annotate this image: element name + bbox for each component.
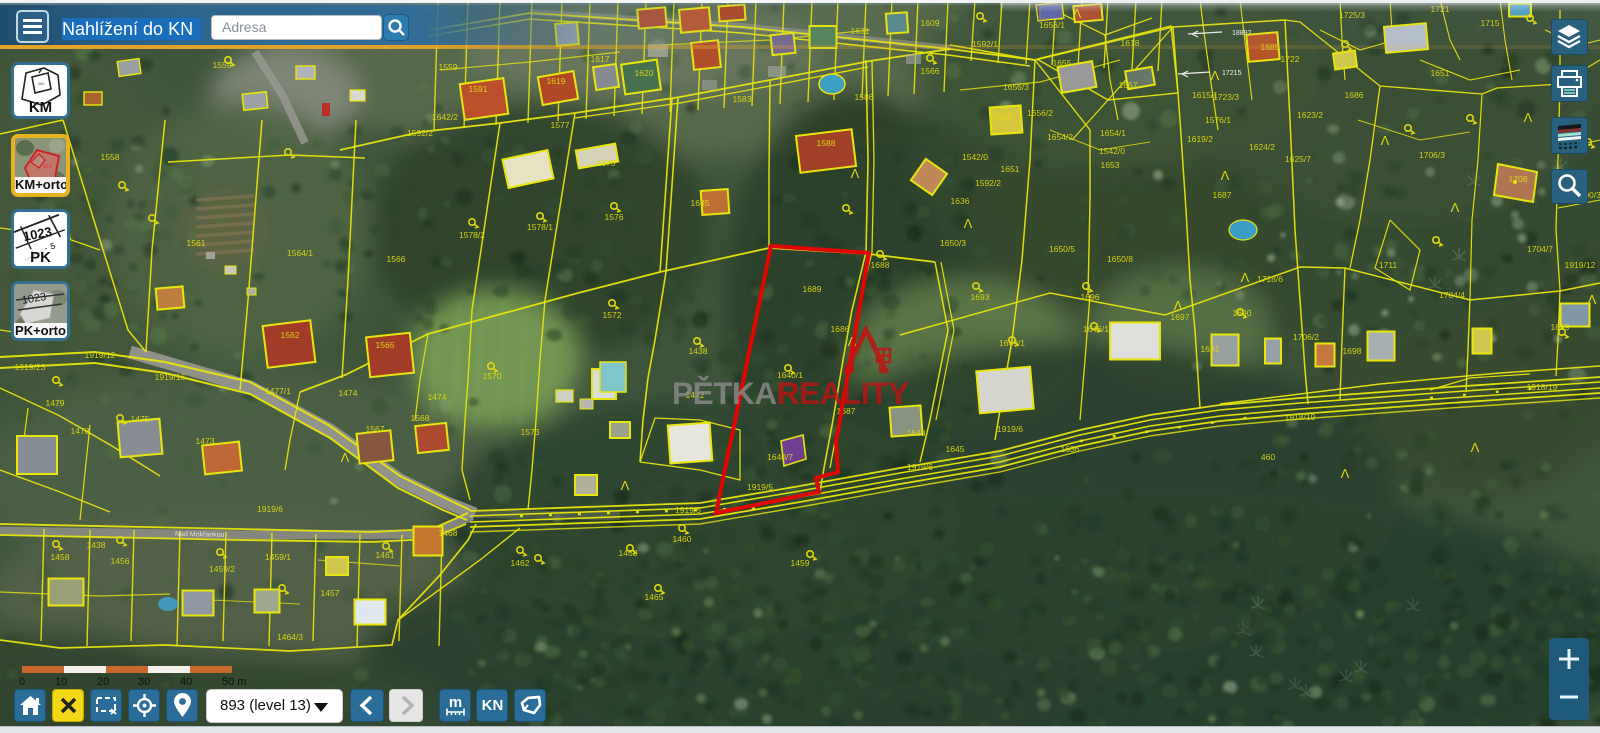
svg-text:1562: 1562 <box>281 330 300 340</box>
svg-text:Λ: Λ <box>1451 200 1460 215</box>
svg-text:1654/1: 1654/1 <box>1100 128 1126 138</box>
svg-text:1570: 1570 <box>483 371 502 381</box>
svg-text:1919/6: 1919/6 <box>997 424 1023 434</box>
svg-text:Λ: Λ <box>621 478 630 493</box>
svg-text:1704/7: 1704/7 <box>1527 244 1553 254</box>
svg-text:1653: 1653 <box>1101 160 1120 170</box>
svg-text:1691: 1691 <box>1201 344 1220 354</box>
svg-text:1479: 1479 <box>46 398 65 408</box>
svg-text:1458: 1458 <box>51 552 70 562</box>
svg-text:1645: 1645 <box>946 444 965 454</box>
svg-text:1468: 1468 <box>439 528 458 538</box>
svg-text:Λ: Λ <box>964 216 973 231</box>
svg-text:1620: 1620 <box>635 68 654 78</box>
svg-text:1919/5: 1919/5 <box>675 505 701 515</box>
svg-text:1459/2: 1459/2 <box>209 564 235 574</box>
svg-text:Λ: Λ <box>1341 466 1350 481</box>
svg-text:1558: 1558 <box>101 152 120 162</box>
svg-text:1583: 1583 <box>733 94 752 104</box>
svg-text:1559: 1559 <box>439 62 458 72</box>
svg-text:1689: 1689 <box>803 284 822 294</box>
svg-text:1918/19: 1918/19 <box>1285 412 1316 422</box>
svg-text:1588: 1588 <box>817 138 836 148</box>
svg-text:1619: 1619 <box>547 76 566 86</box>
svg-text:1564/1: 1564/1 <box>287 248 313 258</box>
svg-text:1706/2: 1706/2 <box>1293 332 1319 342</box>
svg-text:1591: 1591 <box>469 84 488 94</box>
svg-text:1693: 1693 <box>971 292 990 302</box>
svg-text:1722: 1722 <box>1281 54 1300 64</box>
svg-text:Λ: Λ <box>1588 292 1597 307</box>
svg-text:Λ: Λ <box>1524 110 1533 125</box>
svg-text:1723/3: 1723/3 <box>1213 92 1239 102</box>
svg-text:1699: 1699 <box>1551 322 1570 332</box>
svg-text:1566: 1566 <box>387 254 406 264</box>
svg-text:1464/3: 1464/3 <box>277 632 303 642</box>
svg-text:1718/6: 1718/6 <box>1257 274 1283 284</box>
svg-text:1567: 1567 <box>366 424 385 434</box>
svg-text:1578/1: 1578/1 <box>527 222 553 232</box>
svg-text:1459: 1459 <box>791 558 810 568</box>
svg-text:460: 460 <box>1261 452 1275 462</box>
svg-text:1655: 1655 <box>1053 58 1072 68</box>
svg-text:1566: 1566 <box>921 66 940 76</box>
svg-text:1559: 1559 <box>213 60 232 70</box>
svg-text:Λ: Λ <box>1241 270 1250 285</box>
svg-text:1642/2: 1642/2 <box>432 112 458 122</box>
svg-text:1575: 1575 <box>597 158 616 168</box>
svg-text:1640/7: 1640/7 <box>767 452 793 462</box>
svg-text:1576: 1576 <box>605 212 624 222</box>
svg-text:1592/2: 1592/2 <box>407 128 433 138</box>
svg-text:1477/1: 1477/1 <box>265 386 291 396</box>
svg-text:Λ: Λ <box>1381 133 1390 148</box>
svg-text:Λ: Λ <box>1174 298 1183 313</box>
svg-text:1636: 1636 <box>1061 444 1080 454</box>
svg-text:PĚTKAREALITY: PĚTKAREALITY <box>672 375 909 411</box>
svg-text:1457: 1457 <box>321 588 340 598</box>
svg-text:1643: 1643 <box>907 428 926 438</box>
svg-text:1919/6: 1919/6 <box>257 504 283 514</box>
svg-text:1698: 1698 <box>1343 346 1362 356</box>
svg-text:Nad Mokřankou: Nad Mokřankou <box>175 531 225 539</box>
svg-text:1919/23: 1919/23 <box>15 362 46 372</box>
svg-text:1919/16: 1919/16 <box>155 372 186 382</box>
svg-text:1459/1: 1459/1 <box>265 552 291 562</box>
svg-text:1635: 1635 <box>691 198 710 208</box>
svg-text:1617: 1617 <box>591 54 610 64</box>
svg-text:1656/2: 1656/2 <box>1027 108 1053 118</box>
svg-text:1619/2: 1619/2 <box>1187 134 1213 144</box>
svg-text:1918/19: 1918/19 <box>1527 382 1558 392</box>
svg-text:Λ: Λ <box>1471 440 1480 455</box>
svg-text:1650/3: 1650/3 <box>940 238 966 248</box>
svg-text:1592/2: 1592/2 <box>975 178 1001 188</box>
svg-text:1686: 1686 <box>1345 90 1364 100</box>
svg-text:1438: 1438 <box>87 540 106 550</box>
svg-text:1475: 1475 <box>131 414 150 424</box>
svg-text:Λ: Λ <box>341 450 350 465</box>
svg-text:1578/2: 1578/2 <box>459 230 485 240</box>
svg-text:1586: 1586 <box>855 92 874 102</box>
svg-text:1919/12: 1919/12 <box>1565 260 1596 270</box>
svg-text:1474: 1474 <box>339 388 358 398</box>
svg-text:Λ: Λ <box>851 166 860 181</box>
svg-text:1711: 1711 <box>1379 260 1398 270</box>
svg-text:1568: 1568 <box>411 413 430 423</box>
svg-text:1704/4: 1704/4 <box>1439 290 1465 300</box>
svg-text:m: m <box>449 694 462 711</box>
svg-text:1542/0: 1542/0 <box>1099 146 1125 156</box>
svg-text:313: 313 <box>43 164 52 170</box>
svg-text:1577: 1577 <box>551 120 570 130</box>
svg-text:1561: 1561 <box>187 238 206 248</box>
svg-text:1462: 1462 <box>511 558 530 568</box>
svg-text:1624/2: 1624/2 <box>1249 142 1275 152</box>
svg-text:1656/3: 1656/3 <box>1003 82 1029 92</box>
svg-text:1456: 1456 <box>111 556 130 566</box>
svg-text:1478: 1478 <box>71 426 90 436</box>
svg-text:1572: 1572 <box>603 310 622 320</box>
svg-text:1688: 1688 <box>871 260 890 270</box>
svg-text:360: 360 <box>38 81 45 86</box>
svg-text:1697: 1697 <box>1171 312 1190 322</box>
svg-text:1650/5: 1650/5 <box>1049 244 1075 254</box>
svg-text:1625/7: 1625/7 <box>1285 154 1311 164</box>
svg-text:1686: 1686 <box>831 324 850 334</box>
svg-text:1542/0: 1542/0 <box>962 152 988 162</box>
svg-text:1706/3: 1706/3 <box>1419 150 1445 160</box>
svg-text:1650/8: 1650/8 <box>1107 254 1133 264</box>
svg-text:1642: 1642 <box>993 112 1012 122</box>
svg-text:1474: 1474 <box>428 392 447 402</box>
svg-text:1651: 1651 <box>1001 164 1020 174</box>
svg-text:1708: 1708 <box>1509 174 1528 184</box>
svg-text:1460: 1460 <box>673 534 692 544</box>
svg-text:1696: 1696 <box>1081 292 1100 302</box>
svg-text:1565: 1565 <box>376 340 395 350</box>
svg-text:1687: 1687 <box>1213 190 1232 200</box>
svg-text:1623/2: 1623/2 <box>1297 110 1323 120</box>
svg-text:17215: 17215 <box>1222 70 1242 77</box>
svg-text:1657: 1657 <box>1119 80 1138 90</box>
svg-text:1919/6: 1919/6 <box>907 462 933 472</box>
svg-text:1473: 1473 <box>196 436 215 446</box>
svg-text:1654/2: 1654/2 <box>1047 132 1073 142</box>
svg-text:1438: 1438 <box>689 346 708 356</box>
svg-text:1651: 1651 <box>1431 68 1450 78</box>
svg-text:1636: 1636 <box>951 196 970 206</box>
svg-text:1576/1: 1576/1 <box>1205 115 1231 125</box>
svg-text:Λ: Λ <box>1221 168 1230 183</box>
svg-text:1919/5: 1919/5 <box>747 482 773 492</box>
svg-text:1573: 1573 <box>521 427 540 437</box>
svg-text:Λ: Λ <box>1211 68 1220 83</box>
svg-text:1919/12: 1919/12 <box>85 350 116 360</box>
